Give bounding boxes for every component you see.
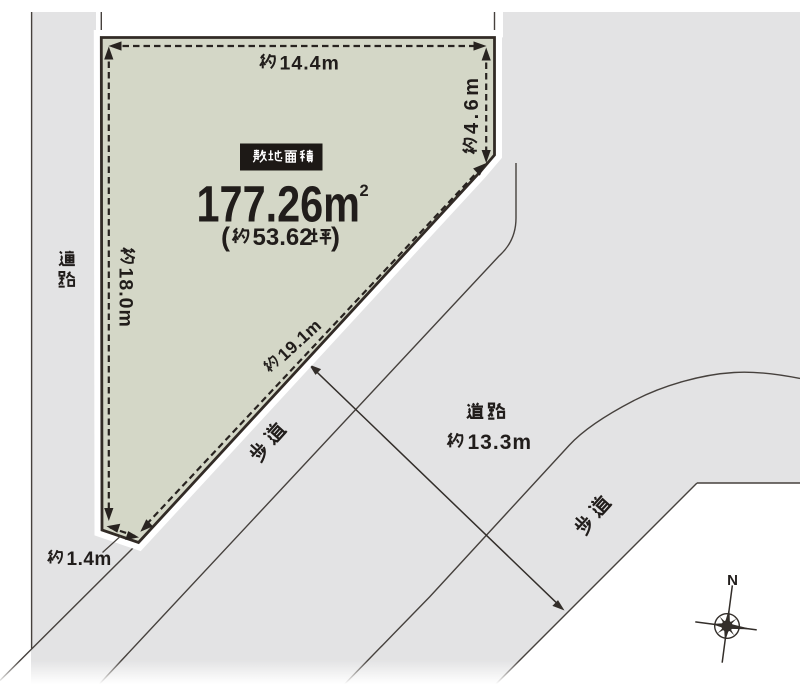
svg-text:53.62: 53.62: [253, 224, 313, 251]
svg-text:(: (: [221, 222, 230, 252]
svg-text:2: 2: [360, 182, 369, 200]
svg-text:14.4m: 14.4m: [280, 53, 340, 75]
svg-text:): ): [331, 222, 340, 252]
svg-text:4.6m: 4.6m: [461, 74, 483, 134]
svg-text:18.0m: 18.0m: [114, 268, 136, 328]
svg-text:13.3m: 13.3m: [468, 431, 533, 454]
svg-text:1.4m: 1.4m: [67, 549, 112, 570]
svg-text:N: N: [727, 572, 738, 589]
